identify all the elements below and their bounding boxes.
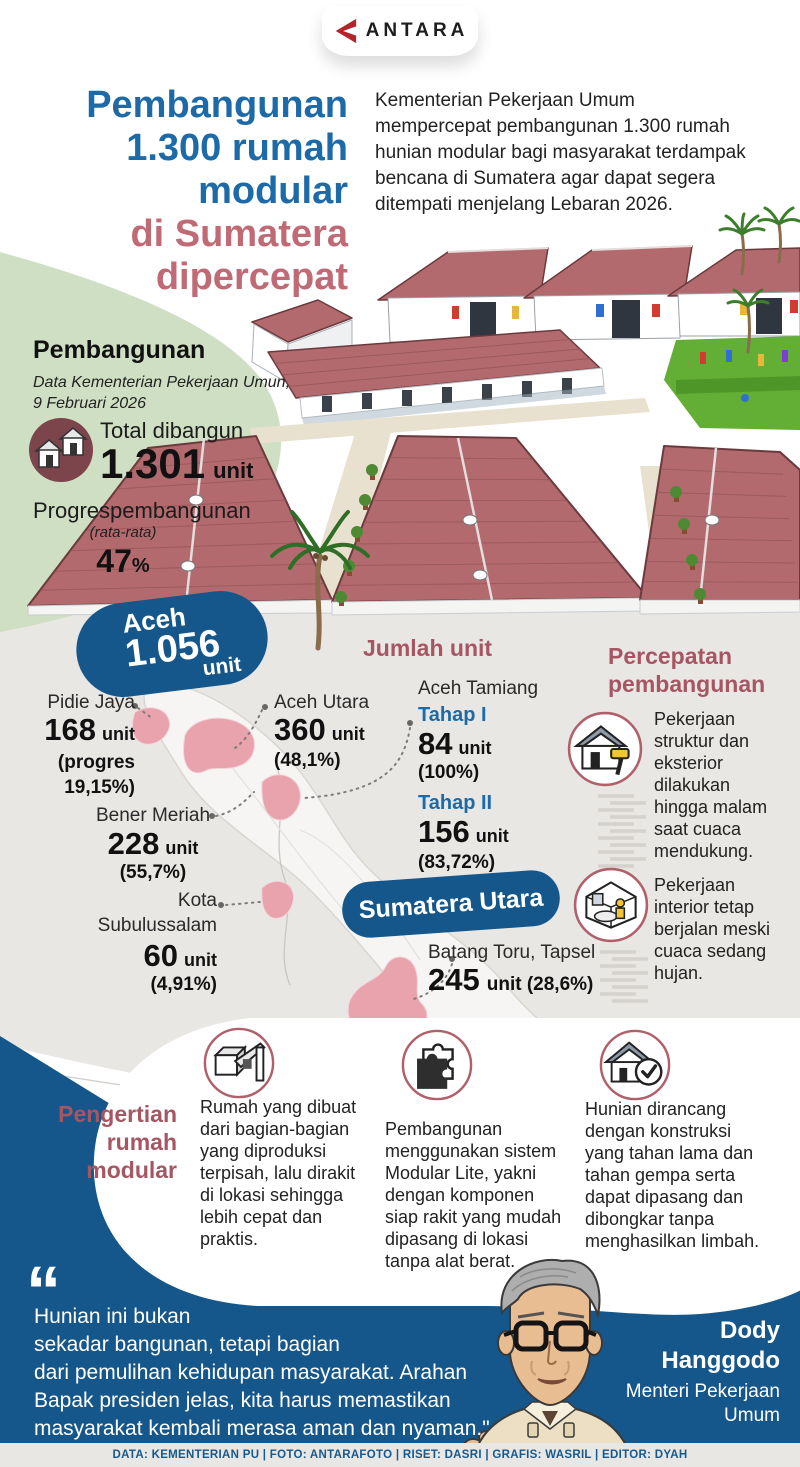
antara-logo-icon <box>332 17 358 45</box>
tahap2-value: 156unit <box>418 814 509 850</box>
aceh-utara-detail: (48,1%) <box>274 750 341 772</box>
total-value: 1.301 unit <box>100 440 253 488</box>
pengertian-item-1-text: Rumah yang dibuat dari bagian-bagian yan… <box>200 1096 360 1250</box>
percepatan-heading: Percepatan pembangunan <box>608 642 765 698</box>
percepatan-item-2-text: Pekerjaan interior tetap berjalan meski … <box>654 874 780 984</box>
back-row-houses <box>378 246 800 342</box>
antara-logo-badge: ANTARA <box>322 6 478 56</box>
antara-logo-text: ANTARA <box>366 20 469 42</box>
pembangunan-source: Data Kementerian Pekerjaan Umun, 9 Febru… <box>33 372 290 414</box>
person-title: Menteri Pekerjaan Umum <box>600 1380 780 1428</box>
house-paint-roller-icon <box>566 710 644 793</box>
foreground-roof-3 <box>640 446 800 614</box>
pidie-jaya-value: 168unit <box>10 712 135 748</box>
pidie-jaya-detail: (progres 19,15%) <box>10 750 135 800</box>
subulussalam-name: Kota Subulussalam <box>73 888 217 938</box>
house-check-icon <box>598 1028 672 1107</box>
tahap1-label: Tahap I <box>418 704 487 727</box>
infographic-page: ANTARA Pembangunan 1.300 rumah modular d… <box>0 0 800 1467</box>
pengertian-item-2-text: Pembangunan menggunakan sistem Modular L… <box>385 1118 569 1272</box>
pidie-jaya-name: Pidie Jaya <box>10 692 135 714</box>
tahap1-detail: (100%) <box>418 762 479 784</box>
jumlah-unit-heading: Jumlah unit <box>363 634 492 662</box>
pembangunan-heading: Pembangunan <box>33 336 205 365</box>
progress-value: 47% <box>33 543 213 580</box>
title-blue: Pembangunan 1.300 rumah modular <box>40 84 348 213</box>
quote-text: Hunian ini bukan sekadar bangunan, tetap… <box>34 1303 514 1443</box>
subulussalam-detail: (4,91%) <box>73 974 217 996</box>
progress-label: Progrespembangunan <box>33 498 213 524</box>
person-name: Dody Hanggodo <box>600 1316 780 1376</box>
batang-toru-value: 245unit (28,6%) <box>428 962 593 998</box>
tahap2-detail: (83,72%) <box>418 852 495 874</box>
tahap2-label: Tahap II <box>418 792 492 815</box>
title-rose: di Sumatera dipercepat <box>40 213 348 299</box>
aceh-utara-name: Aceh Utara <box>274 692 369 714</box>
bener-meriah-name: Bener Meriah <box>83 805 223 827</box>
progress-sublabel: (rata-rata) <box>33 524 213 541</box>
tahap1-value: 84unit <box>418 726 491 762</box>
bener-meriah-value: 228unit <box>83 826 223 862</box>
percepatan-item-1-text: Pekerjaan struktur dan eksterior dilakuk… <box>654 708 776 862</box>
pengertian-heading: Pengertian rumah modular <box>55 1100 177 1184</box>
aceh-utara-value: 360unit <box>274 712 365 748</box>
room-interior-icon <box>572 866 650 949</box>
total-houses-icon <box>27 416 95 489</box>
bener-meriah-detail: (55,7%) <box>83 862 223 884</box>
aceh-tamiang-name: Aceh Tamiang <box>418 678 538 700</box>
intro-paragraph: Kementerian Pekerjaan Umum mempercepat p… <box>375 88 755 218</box>
puzzle-piece-icon <box>400 1028 474 1107</box>
subulussalam-value: 60unit <box>73 938 217 974</box>
batang-toru-name: Batang Toru, Tapsel <box>428 942 595 964</box>
footer-credits: DATA: KEMENTERIAN PU | FOTO: ANTARAFOTO … <box>0 1443 800 1467</box>
modular-assembly-icon <box>202 1026 276 1105</box>
lawn-playground <box>664 336 800 430</box>
pengertian-item-3-text: Hunian dirancang dengan konstruksi yang … <box>585 1098 771 1252</box>
